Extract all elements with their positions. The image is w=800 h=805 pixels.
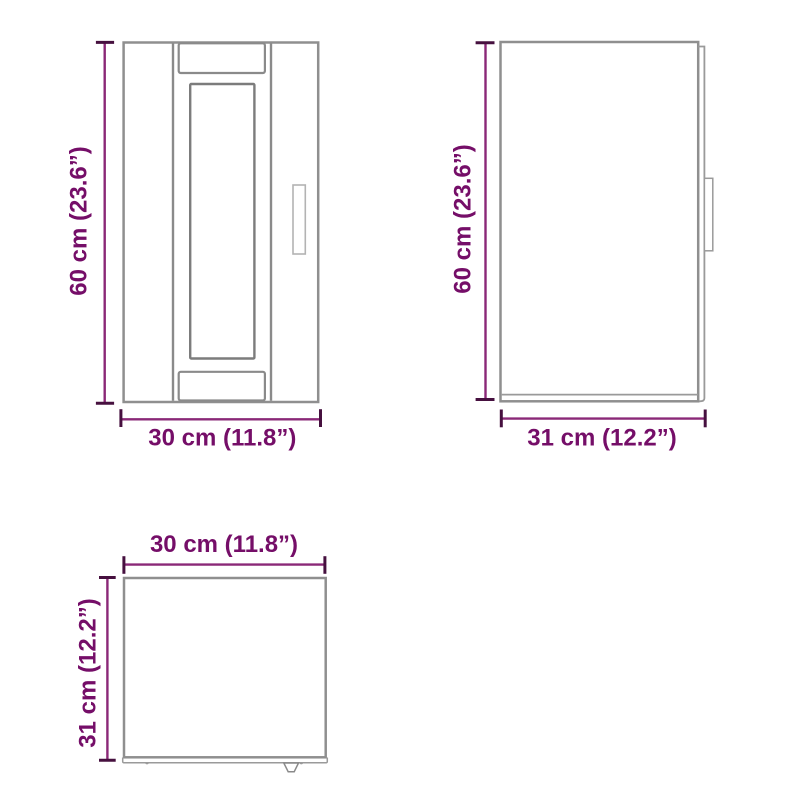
svg-text:31 cm (12.2”): 31 cm (12.2”): [74, 598, 101, 747]
svg-text:60 cm (23.6”): 60 cm (23.6”): [66, 146, 93, 295]
svg-text:30 cm (11.8”): 30 cm (11.8”): [148, 425, 296, 452]
svg-text:60 cm (23.6”): 60 cm (23.6”): [450, 144, 477, 293]
svg-text:31 cm (12.2”): 31 cm (12.2”): [527, 425, 676, 452]
svg-text:30 cm (11.8”): 30 cm (11.8”): [150, 531, 298, 558]
